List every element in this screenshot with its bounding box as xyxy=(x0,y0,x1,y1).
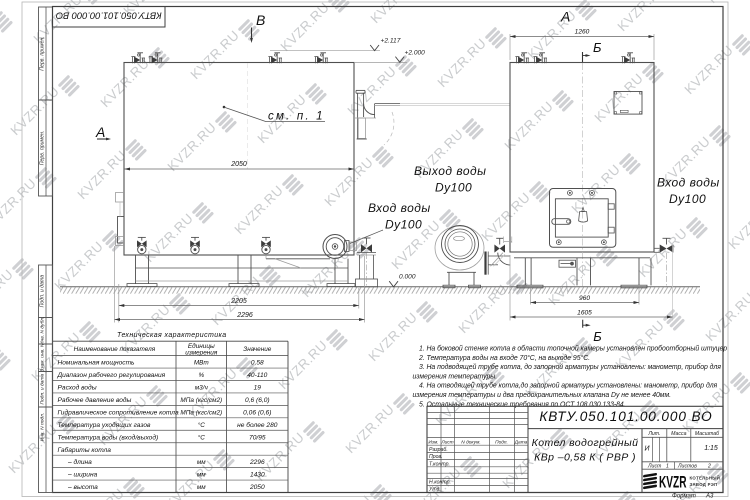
svg-text:1: 1 xyxy=(666,463,669,469)
svg-text:ЗАВОД РЭП: ЗАВОД РЭП xyxy=(690,482,718,487)
svg-text:2296: 2296 xyxy=(236,312,253,319)
svg-text:Подп. и дата: Подп. и дата xyxy=(40,374,46,405)
svg-text:2: 2 xyxy=(707,463,711,469)
svg-text:КОТЕЛЬНЫЙ: КОТЕЛЬНЫЙ xyxy=(690,476,721,481)
svg-text:мм: мм xyxy=(197,472,206,479)
svg-text:Наименование показателя: Наименование показателя xyxy=(74,346,156,353)
svg-text:Гидравлическое сопротивление к: Гидравлическое сопротивление котла xyxy=(58,408,179,416)
svg-text:Значение: Значение xyxy=(243,346,271,353)
svg-text:1:15: 1:15 xyxy=(704,445,718,452)
svg-text:960: 960 xyxy=(579,295,590,302)
svg-text:Лит.: Лит. xyxy=(647,431,660,437)
svg-text:4. На отводящей трубе котла,д: 4. На отводящей трубе котла,до запорной … xyxy=(419,382,718,390)
svg-text:– длина: – длина xyxy=(67,458,92,466)
svg-text:Б: Б xyxy=(593,40,602,55)
svg-text:°С: °С xyxy=(198,421,206,429)
svg-text:Разраб.: Разраб. xyxy=(429,447,448,453)
svg-text:Лист: Лист xyxy=(440,440,453,446)
svg-text:МПа (кгс/см2): МПа (кгс/см2) xyxy=(180,409,222,416)
svg-text:Т.контр.: Т.контр. xyxy=(429,461,450,467)
svg-text:Температура уходящих газов: Температура уходящих газов xyxy=(58,421,151,429)
svg-text:2205: 2205 xyxy=(230,298,247,305)
svg-text:Вход воды: Вход воды xyxy=(368,201,431,215)
svg-text:Выход воды: Выход воды xyxy=(414,164,486,178)
svg-text:0,58: 0,58 xyxy=(251,360,264,367)
svg-text:1. На боковой стенке котла в: 1. На боковой стенке котла в области топ… xyxy=(419,345,727,353)
svg-text:Габариты котла: Габариты котла xyxy=(58,446,112,454)
svg-text:+2.000: +2.000 xyxy=(405,49,426,56)
svg-text:не более 280: не более 280 xyxy=(237,421,278,429)
svg-text:Вход воды: Вход воды xyxy=(657,176,720,190)
svg-text:%: % xyxy=(198,372,204,379)
svg-text:Рабочее давление воды: Рабочее давление воды xyxy=(58,396,132,404)
svg-text:Утв.: Утв. xyxy=(429,486,441,492)
svg-text:А: А xyxy=(95,124,105,140)
svg-text:N докум.: N докум. xyxy=(461,440,480,446)
svg-text:КВТУ.050.101.00.000 ВО: КВТУ.050.101.00.000 ВО xyxy=(55,11,162,22)
svg-text:– высота: – высота xyxy=(67,484,98,491)
svg-text:40-110: 40-110 xyxy=(247,372,267,379)
svg-text:1260: 1260 xyxy=(575,29,590,36)
svg-text:мм: мм xyxy=(197,459,206,466)
svg-text:Инв. N дубл.: Инв. N дубл. xyxy=(40,317,46,345)
svg-text:Масса: Масса xyxy=(671,431,686,437)
svg-text:Котел водогрейный: Котел водогрейный xyxy=(532,437,639,449)
svg-text:Лист: Лист xyxy=(647,463,662,469)
svg-text:0.000: 0.000 xyxy=(399,274,416,281)
svg-text:+2.117: +2.117 xyxy=(381,38,401,45)
svg-text:измерения: измерения xyxy=(185,349,218,356)
svg-text:2050: 2050 xyxy=(249,484,265,491)
svg-text:МПа (кгс/см2): МПа (кгс/см2) xyxy=(180,397,222,404)
svg-text:2296: 2296 xyxy=(249,459,265,466)
svg-text:Б: Б xyxy=(593,329,602,344)
svg-text:KVZR: KVZR xyxy=(659,474,687,492)
svg-text:Инв. N подл.: Инв. N подл. xyxy=(40,413,46,442)
svg-text:2050: 2050 xyxy=(230,161,247,168)
svg-text:КВр –0,58 К ( РВР ): КВр –0,58 К ( РВР ) xyxy=(534,452,636,464)
svg-text:Расход воды: Расход воды xyxy=(58,384,97,392)
svg-text:А: А xyxy=(560,9,570,25)
svg-text:– ширина: – ширина xyxy=(67,472,98,479)
svg-text:МВт: МВт xyxy=(194,360,210,367)
svg-text:0,06 (0,6): 0,06 (0,6) xyxy=(243,409,271,416)
svg-text:измерения температуры.: измерения температуры. xyxy=(413,373,498,380)
svg-text:КВТУ.050.101.00.000 ВО: КВТУ.050.101.00.000 ВО xyxy=(539,409,712,424)
svg-text:19: 19 xyxy=(254,385,262,392)
svg-text:Dy100: Dy100 xyxy=(385,218,422,232)
svg-text:мм: мм xyxy=(197,484,206,491)
svg-text:2. Температура воды на входе: 2. Температура воды на входе 70°С, на вы… xyxy=(418,354,590,362)
svg-text:Листов: Листов xyxy=(677,463,697,469)
svg-text:м3/ч: м3/ч xyxy=(195,385,209,392)
svg-text:Диапазон рабочего регулировани: Диапазон рабочего регулирования xyxy=(57,371,166,379)
svg-text:5. Остальные технические треб: 5. Остальные технические требования по О… xyxy=(419,400,626,408)
svg-text:Взам. инв. N: Взам. инв. N xyxy=(40,343,46,372)
svg-text:Перв. примен.: Перв. примен. xyxy=(40,36,46,70)
svg-text:В: В xyxy=(256,12,265,28)
svg-text:Dy100: Dy100 xyxy=(435,181,472,195)
svg-text:Температура воды (вход/выход): Температура воды (вход/выход) xyxy=(58,433,159,441)
svg-text:Перв. примен.: Перв. примен. xyxy=(40,131,46,165)
svg-text:1605: 1605 xyxy=(577,310,592,317)
svg-text:Масштаб: Масштаб xyxy=(695,431,720,437)
svg-text:Подп.: Подп. xyxy=(495,440,508,446)
svg-text:70/95: 70/95 xyxy=(249,434,266,441)
svg-text:Изм.: Изм. xyxy=(428,440,438,446)
svg-text:Дата: Дата xyxy=(514,440,528,446)
svg-text:Формат: Формат xyxy=(672,494,696,500)
svg-text:Номинальная мощность: Номинальная мощность xyxy=(58,360,136,367)
svg-text:А3: А3 xyxy=(705,494,714,500)
svg-text:0,6 (6,0): 0,6 (6,0) xyxy=(245,397,270,404)
svg-text:1430: 1430 xyxy=(250,472,265,479)
svg-text:Dy100: Dy100 xyxy=(669,192,706,206)
svg-text:Пров.: Пров. xyxy=(429,454,443,460)
svg-text:Подп. и дата: Подп. и дата xyxy=(40,275,46,308)
svg-text:°С: °С xyxy=(198,433,206,441)
svg-text:Техническая характеристика: Техническая характеристика xyxy=(117,332,227,339)
svg-text:Н.контр.: Н.контр. xyxy=(429,480,451,486)
svg-text:измерения температуры и два пр: измерения температуры и два предохраните… xyxy=(413,391,672,399)
svg-text:3. На подводящей трубе котла,: 3. На подводящей трубе котла, до запорно… xyxy=(419,363,721,371)
svg-text:см. п. 1: см. п. 1 xyxy=(268,111,325,123)
